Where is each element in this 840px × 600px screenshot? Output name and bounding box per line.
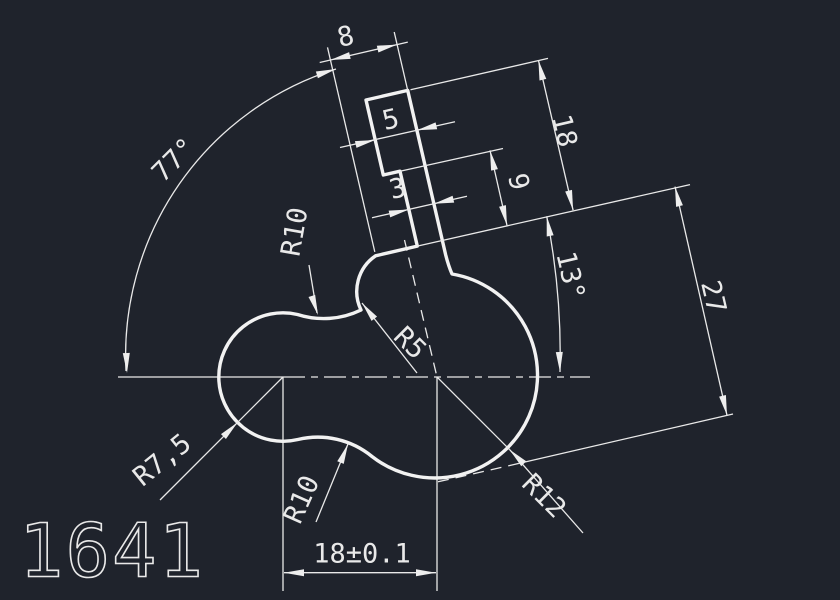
arrowhead	[337, 443, 351, 464]
r10-top-label: R10	[276, 205, 315, 258]
r75-label: R7,5	[127, 428, 197, 493]
arrowhead	[221, 420, 240, 439]
construction-lines	[118, 240, 733, 591]
dim-8-label: 8	[334, 20, 357, 54]
dim-18-label: 18	[545, 111, 583, 150]
dim-9-ext-top	[400, 149, 503, 172]
dimension-r10-bottom: R10	[278, 443, 351, 528]
dim-8-ext-right	[394, 32, 408, 90]
arrowhead	[433, 196, 454, 207]
part-outline	[219, 90, 538, 478]
dimension-r12: R12	[437, 377, 583, 533]
dimension-8: 8	[320, 20, 408, 252]
dimension-9: 9	[400, 149, 535, 227]
dimension-13deg: 13°	[543, 216, 590, 373]
shoulder-extension-line	[417, 185, 690, 247]
arrowhead	[416, 569, 436, 576]
arrowhead	[308, 295, 321, 316]
dimension-3: 3	[372, 172, 467, 218]
arrowhead	[416, 122, 437, 133]
dim-77-label: 77°	[146, 132, 202, 188]
tangent-line-dashed	[438, 463, 519, 481]
dim-3-label: 3	[386, 172, 409, 206]
arrowhead	[330, 52, 351, 63]
dim-8-ext-left	[328, 47, 375, 252]
arrowhead	[487, 150, 498, 171]
arrowhead	[389, 206, 410, 217]
arrowhead	[499, 205, 510, 226]
dimension-5: 5	[340, 103, 455, 148]
arrowhead	[284, 569, 304, 576]
r10-bottom-label: R10	[278, 471, 326, 528]
dim-27-label: 27	[694, 277, 732, 316]
dimension-18: 18	[411, 58, 691, 246]
dim-9-label: 9	[501, 170, 535, 193]
arrowhead	[556, 352, 564, 372]
arrowhead	[719, 395, 730, 416]
dim-13-arc	[547, 216, 561, 372]
r12-radial-line	[437, 377, 510, 450]
dim-13-label: 13°	[549, 249, 590, 304]
arrowhead	[123, 353, 131, 373]
dimension-27: 27	[672, 186, 732, 416]
dim-18tol-label: 18±0.1	[313, 539, 411, 570]
cad-canvas: 8 5 3 18 9 27	[0, 0, 840, 600]
arrowhead	[565, 190, 576, 211]
r12-label: R12	[516, 468, 572, 524]
dim-5-label: 5	[379, 103, 402, 137]
arrowhead	[535, 59, 546, 80]
arrowhead	[543, 216, 553, 237]
part-number: 1641	[19, 509, 205, 595]
arrowhead	[355, 137, 376, 148]
dimension-18-tol: 18±0.1	[284, 539, 436, 577]
arrowhead	[377, 41, 398, 52]
technical-drawing: 8 5 3 18 9 27	[0, 0, 840, 600]
dimension-r10-top: R10	[276, 205, 322, 316]
tangent-extension-solid	[519, 414, 733, 463]
dim-18-ext-top	[411, 58, 549, 89]
